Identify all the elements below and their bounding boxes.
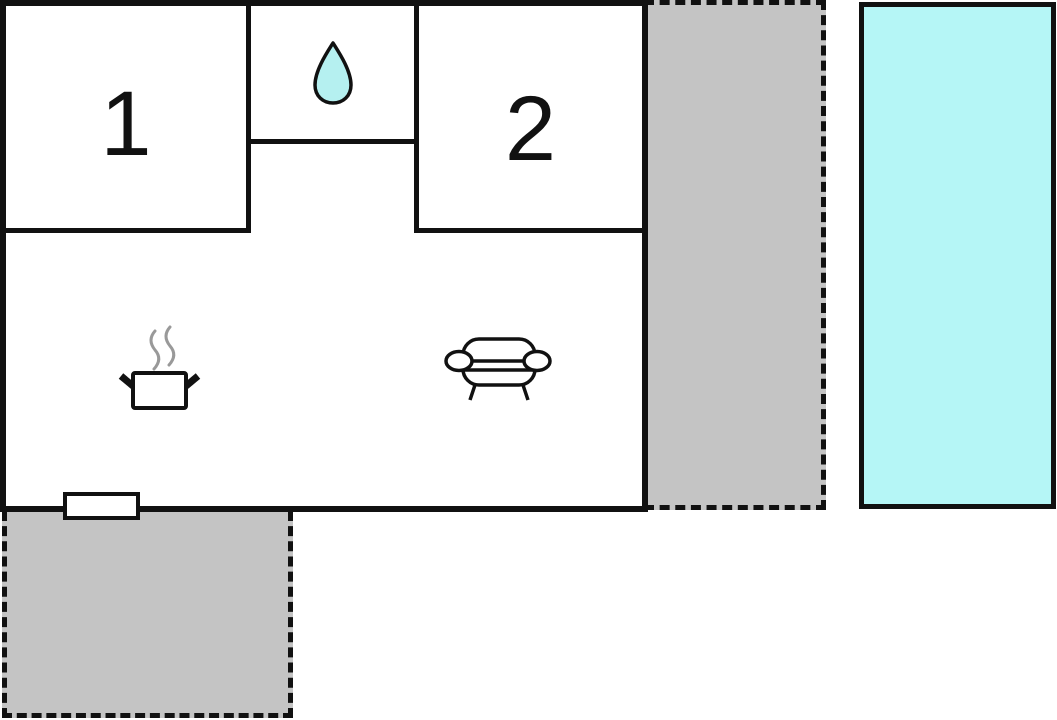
room-bedroom-1: 1 [6,6,246,228]
wall-bedroom1-bottom [6,228,251,233]
room-bathroom [251,6,414,139]
bedroom-1-label: 1 [100,78,151,170]
terrace-bottom-left [2,511,293,718]
floor-plan: 1 2 [0,0,1057,720]
sofa-icon [442,330,554,408]
building-outline: 1 2 [0,0,648,512]
entrance-door [63,492,140,520]
wall-bathroom-bottom [246,139,419,144]
water-drop-icon [311,40,355,106]
pool [859,2,1056,509]
wall-bedroom2-bottom [414,228,642,233]
bedroom-2-label: 2 [505,83,556,175]
steam-lines [151,327,174,369]
room-bedroom-2: 2 [419,6,642,228]
terrace-right [644,0,826,510]
cooking-pot-icon [114,324,206,416]
